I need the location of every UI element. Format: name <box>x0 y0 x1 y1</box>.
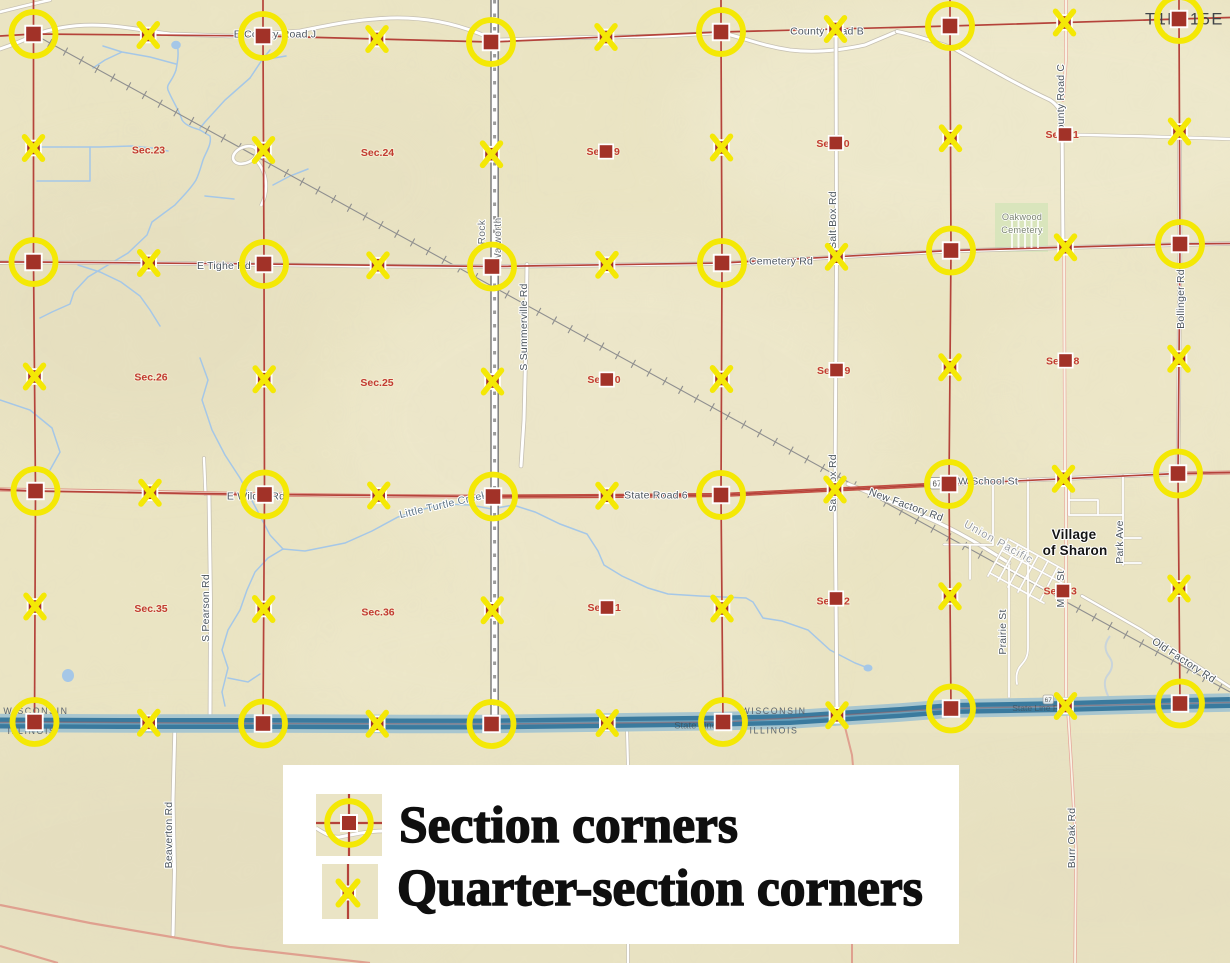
svg-text:Sec.26: Sec.26 <box>134 372 167 384</box>
svg-text:Sec.24: Sec.24 <box>361 147 394 159</box>
svg-text:E County Road J: E County Road J <box>234 29 316 41</box>
svg-text:Sec.23: Sec.23 <box>132 145 165 157</box>
svg-text:Oakwood: Oakwood <box>1002 212 1042 222</box>
svg-text:Burr Oak Rd: Burr Oak Rd <box>1066 808 1078 869</box>
svg-text:15E: 15E <box>1190 11 1224 29</box>
svg-text:State Road 6: State Road 6 <box>624 490 688 502</box>
svg-text:S Pearson Rd: S Pearson Rd <box>200 574 212 642</box>
svg-text:Village: Village <box>1052 527 1097 542</box>
svg-text:State Line Rd: State Line Rd <box>1012 703 1064 713</box>
svg-text:Park Ave: Park Ave <box>1114 520 1126 563</box>
svg-text:Salt Box Rd: Salt Box Rd <box>827 191 839 249</box>
svg-text:of Sharon: of Sharon <box>1043 543 1108 558</box>
svg-text:WISCONSIN: WISCONSIN <box>741 706 806 716</box>
svg-text:67: 67 <box>1045 697 1053 704</box>
svg-text:Rock: Rock <box>477 219 488 244</box>
svg-text:Beaverton Rd: Beaverton Rd <box>163 802 175 869</box>
svg-text:S Summerville Rd: S Summerville Rd <box>518 283 530 370</box>
svg-text:Walworth: Walworth <box>493 217 504 262</box>
svg-text:Sec.25: Sec.25 <box>360 377 393 389</box>
svg-text:ILLINOIS: ILLINOIS <box>750 726 799 736</box>
svg-text:Sec.35: Sec.35 <box>134 603 167 615</box>
svg-text:Bollinger Rd: Bollinger Rd <box>1175 269 1187 329</box>
svg-text:Sec.36: Sec.36 <box>361 607 394 619</box>
svg-text:Prairie St: Prairie St <box>997 609 1009 654</box>
svg-text:Cemetery: Cemetery <box>1001 225 1043 235</box>
svg-text:Cemetery Rd: Cemetery Rd <box>749 256 813 268</box>
